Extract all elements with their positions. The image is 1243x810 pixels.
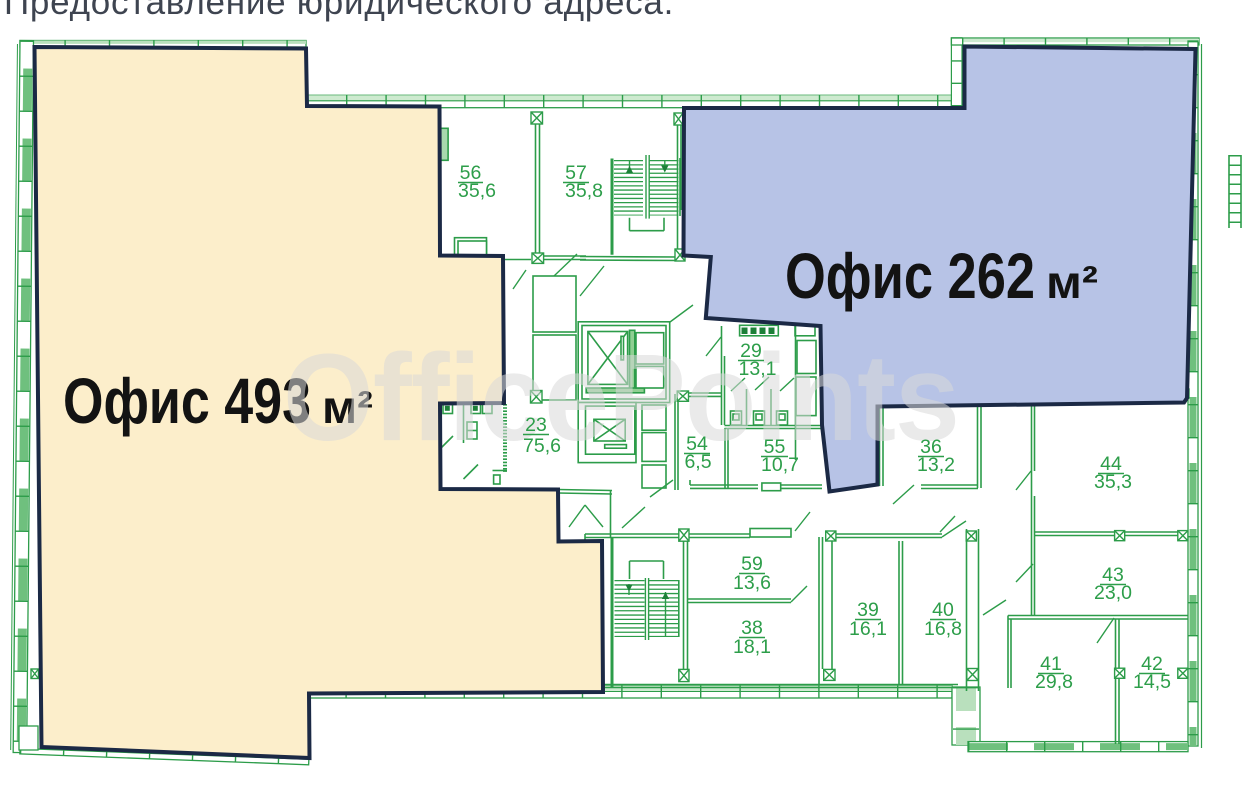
svg-text:13,6: 13,6 (733, 572, 771, 594)
svg-text:18,1: 18,1 (733, 636, 771, 658)
svg-text:13,1: 13,1 (739, 358, 777, 380)
svg-text:35,8: 35,8 (565, 180, 603, 202)
svg-text:Предоставление юридического ад: Предоставление юридического адреса. (4, 0, 674, 22)
svg-text:6,5: 6,5 (684, 451, 711, 473)
svg-text:29,8: 29,8 (1035, 671, 1073, 693)
svg-text:Офис 493: Офис 493 (63, 365, 311, 437)
svg-text:10,7: 10,7 (761, 454, 799, 476)
svg-text:OfficePoints: OfficePoints (283, 330, 959, 467)
svg-text:13,2: 13,2 (917, 454, 955, 476)
svg-text:м²: м² (1046, 256, 1098, 308)
svg-text:16,1: 16,1 (849, 618, 887, 640)
svg-text:75,6: 75,6 (523, 435, 561, 457)
svg-text:16,8: 16,8 (924, 618, 962, 640)
svg-text:35,6: 35,6 (458, 180, 496, 202)
svg-text:35,3: 35,3 (1094, 471, 1132, 493)
svg-text:23: 23 (525, 414, 547, 436)
svg-text:14,5: 14,5 (1133, 671, 1171, 693)
svg-text:Офис 262: Офис 262 (785, 240, 1035, 312)
svg-text:23,0: 23,0 (1094, 582, 1132, 604)
